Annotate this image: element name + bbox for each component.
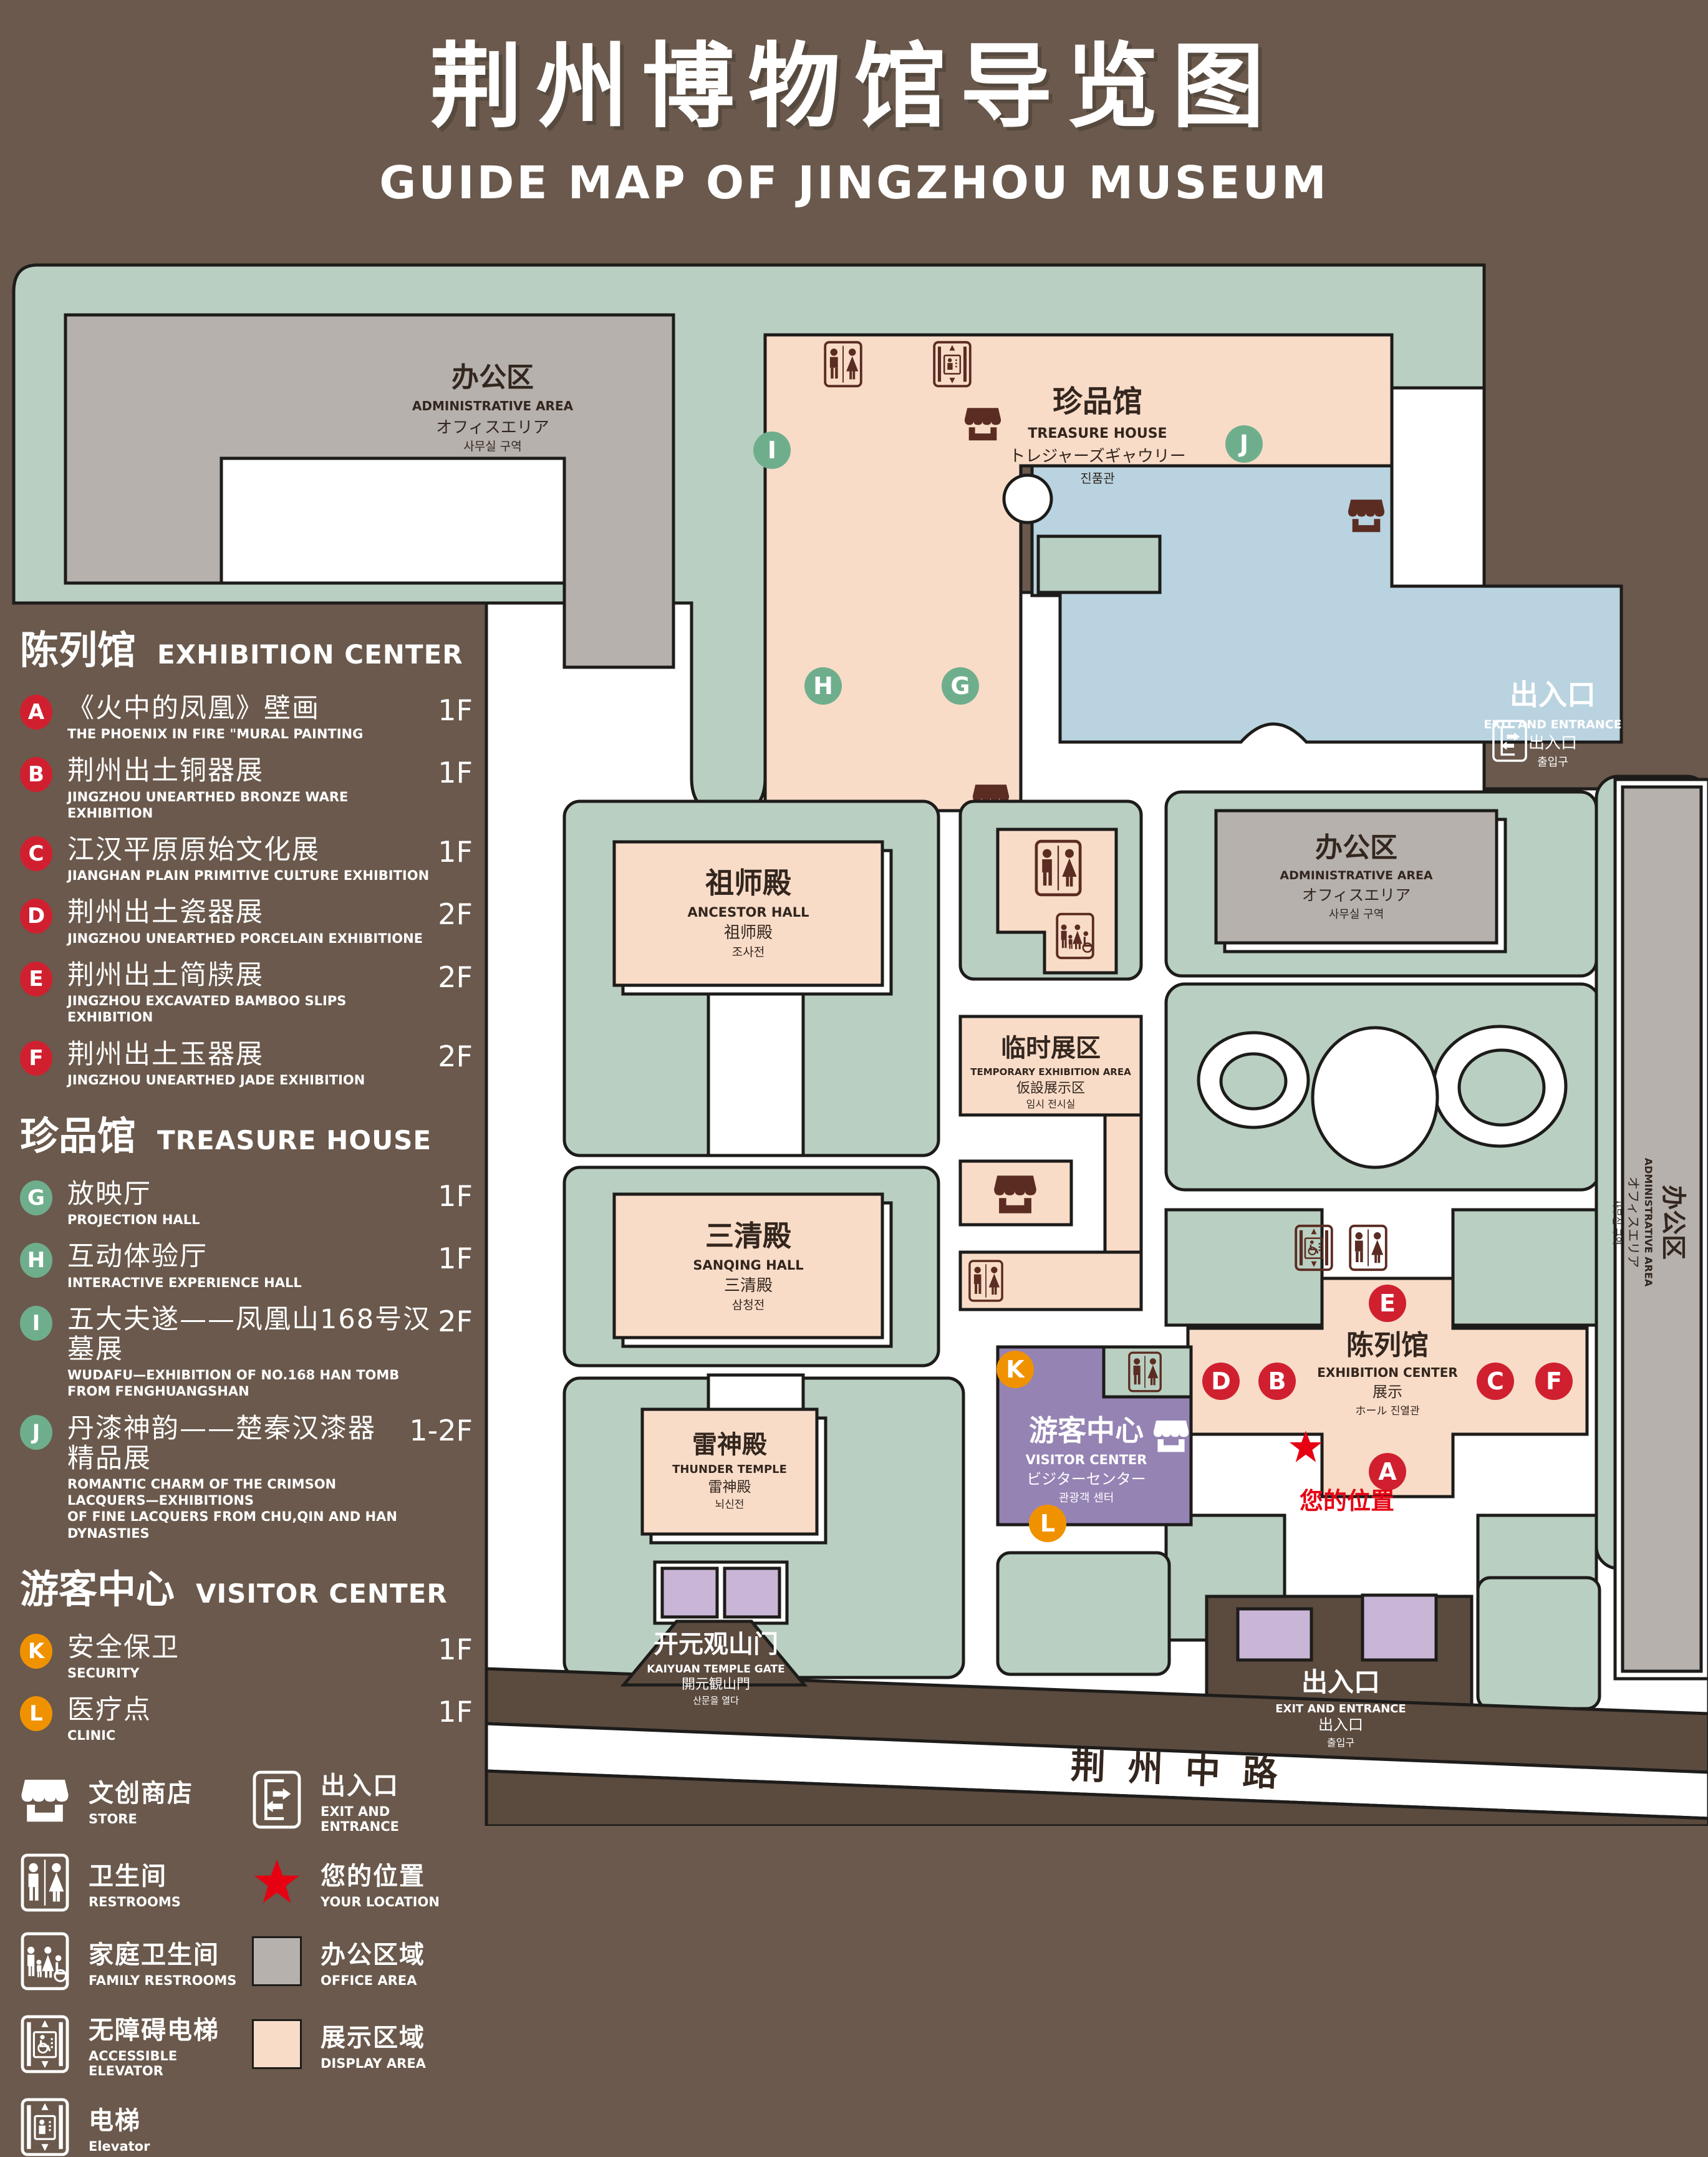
svg-text:H: H	[813, 672, 833, 700]
svg-text:THUNDER TEMPLE: THUNDER TEMPLE	[672, 1463, 787, 1476]
legend-item-j: J 丹漆神韵——楚秦汉漆器精品展 ROMANTIC CHARM OF THE C…	[20, 1414, 473, 1542]
svg-text:SANQING HALL: SANQING HALL	[693, 1258, 803, 1273]
svg-text:展示: 展示	[1373, 1383, 1402, 1401]
svg-text:EXHIBITION CENTER: EXHIBITION CENTER	[1317, 1365, 1458, 1380]
floor-b: 1F	[432, 756, 473, 789]
svg-text:出入口: 出入口	[1318, 1716, 1363, 1734]
legend-item-g: G 放映厅 PROJECTION HALL 1F	[20, 1179, 473, 1228]
floor-f: 2F	[432, 1040, 473, 1073]
svg-text:トレジャーズギャウリー: トレジャーズギャウリー	[1009, 447, 1185, 466]
legend-accessible-elevator: 无障碍电梯 ACCESSIBLE ELEVATOR	[20, 2010, 252, 2078]
floor-d: 2F	[432, 897, 473, 931]
svg-text:ADMINISTRATIVE AREA: ADMINISTRATIVE AREA	[1643, 1158, 1654, 1287]
legend-item-l: L 医疗点 CLINIC 1F	[20, 1695, 473, 1744]
svg-text:G: G	[950, 672, 970, 700]
svg-text:仮設展示区: 仮設展示区	[1016, 1081, 1085, 1096]
badge-i: I	[20, 1306, 52, 1341]
legend-display-area: 展示区域 DISPLAY AREA	[252, 2010, 473, 2078]
path-ancestor	[708, 993, 803, 1156]
svg-text:開元観山門: 開元観山門	[682, 1677, 750, 1692]
lawn-exit-br-right	[1478, 1578, 1599, 1709]
svg-text:VISITOR CENTER: VISITOR CENTER	[1026, 1452, 1147, 1467]
marker-g: G	[942, 667, 979, 705]
garden-island-right	[1459, 1050, 1544, 1125]
legend-your-location: 您的位置 YOUR LOCATION	[252, 1853, 473, 1913]
legend-section-visitor: 游客中心 VISITOR CENTER	[20, 1558, 473, 1614]
svg-text:オフィスエリア: オフィスエリア	[1302, 886, 1411, 904]
lawn-vc-notch	[1104, 1347, 1191, 1397]
section-title-en: EXHIBITION CENTER	[157, 639, 463, 670]
svg-text:J: J	[1238, 430, 1248, 458]
svg-text:I: I	[768, 437, 776, 464]
svg-text:ビジターセンター: ビジターセンター	[1026, 1470, 1146, 1488]
your-location-star	[252, 1853, 304, 1913]
legend-section-treasure: 珍品馆 TREASURE HOUSE	[20, 1104, 473, 1161]
svg-text:출입구: 출입구	[1537, 756, 1568, 769]
svg-text:祖师殿: 祖师殿	[705, 866, 791, 900]
page-title: 荆州博物馆导览图	[0, 11, 1708, 145]
garden-island-left	[1221, 1054, 1286, 1109]
svg-text:出入口: 出入口	[1510, 678, 1596, 712]
legend-item-f: F 荆州出土玉器展 JINGZHOU UNEARTHED JADE EXHIBI…	[20, 1040, 473, 1088]
badge-l: L	[20, 1696, 52, 1731]
garden-pond	[1313, 1028, 1437, 1167]
badge-c: C	[20, 836, 52, 871]
lawn-vc-south	[998, 1553, 1169, 1674]
svg-text:D: D	[1211, 1368, 1231, 1395]
svg-text:办公区: 办公区	[451, 362, 534, 393]
svg-text:游客中心: 游客中心	[1029, 1414, 1144, 1447]
legend-elevator: 电梯 Elevator	[20, 2097, 252, 2157]
legend-panel: 陈列馆 EXHIBITION CENTER A 《火中的凤凰》壁画 THE PH…	[20, 619, 473, 2157]
floor-i: 2F	[432, 1305, 473, 1338]
floor-j: 1-2F	[403, 1414, 473, 1447]
badge-j: J	[20, 1415, 52, 1450]
legend-item-d: D 荆州出土瓷器展 JINGZHOU UNEARTHED PORCELAIN E…	[20, 897, 473, 946]
section-title-en: TREASURE HOUSE	[157, 1125, 432, 1156]
page-subtitle: GUIDE MAP OF JINGZHOU MUSEUM	[0, 157, 1708, 209]
legend-item-e: E 荆州出土简牍展 JINGZHOU EXCAVATED BAMBOO SLIP…	[20, 960, 473, 1026]
svg-text:EXIT AND ENTRANCE: EXIT AND ENTRANCE	[1275, 1702, 1406, 1715]
building-exit-br-right	[1363, 1595, 1436, 1660]
badge-g: G	[20, 1180, 52, 1215]
svg-text:ANCESTOR HALL: ANCESTOR HALL	[688, 905, 809, 920]
legend-exit: 出入口 EXIT AND ENTRANCE	[252, 1765, 473, 1834]
svg-text:B: B	[1268, 1368, 1286, 1395]
marker-d: D	[1202, 1363, 1240, 1400]
legend-store: 文创商店 STORE	[20, 1765, 252, 1834]
svg-text:L: L	[1040, 1510, 1055, 1537]
legend-item-b: B 荆州出土铜器展 JINGZHOU UNEARTHED BRONZE WARE…	[20, 756, 473, 821]
svg-text:조사전: 조사전	[732, 945, 765, 959]
display-area-swatch	[252, 2014, 304, 2074]
accessible-elevator-icon	[20, 2014, 72, 2074]
store-icon	[20, 1770, 72, 1830]
svg-text:临时展区: 临时展区	[1001, 1034, 1101, 1063]
svg-text:출입구: 출입구	[1327, 1737, 1354, 1749]
legend-office-area: 办公区域 OFFICE AREA	[252, 1931, 473, 1991]
your-location-label: 您的位置	[1300, 1487, 1394, 1515]
badge-h: H	[20, 1243, 52, 1278]
legend-restrooms: 卫生间 RESTROOMS	[20, 1853, 252, 1913]
svg-text:사무실 구역: 사무실 구역	[1611, 1199, 1623, 1245]
gate-building-right	[725, 1568, 779, 1617]
marker-f: F	[1535, 1363, 1573, 1400]
svg-text:산문을 열다: 산문을 열다	[693, 1695, 739, 1706]
section-title-cn: 游客中心	[20, 1558, 175, 1614]
legend-item-k: K 安全保卫 SECURITY 1F	[20, 1633, 473, 1681]
svg-text:사무실 구역: 사무실 구역	[1329, 908, 1384, 921]
lawn-on-water	[1038, 536, 1160, 592]
svg-text:사무실 구역: 사무실 구역	[463, 440, 521, 453]
legend-item-i: I 五大夫遂——凤凰山168号汉墓展 WUDAFU—EXHIBITION OF …	[20, 1305, 473, 1400]
accessible-elevator-icon	[1296, 1226, 1332, 1270]
legend-symbols: 文创商店 STORE 出入口 EXIT AND ENTRANCE 卫生间 RES…	[20, 1765, 473, 2157]
restroom-icon	[20, 1853, 72, 1913]
svg-text:진품관: 진품관	[1080, 471, 1114, 486]
svg-text:祖师殿: 祖师殿	[724, 924, 773, 942]
badge-d: D	[20, 899, 52, 934]
svg-text:オフィスエリア: オフィスエリア	[1626, 1177, 1641, 1268]
admin-courtyard	[221, 458, 564, 583]
svg-text:三清殿: 三清殿	[705, 1219, 791, 1253]
marker-a: A	[1369, 1453, 1406, 1490]
marker-h: H	[804, 667, 842, 705]
svg-text:A: A	[1378, 1458, 1397, 1485]
building-exit-br-left	[1238, 1609, 1311, 1660]
svg-text:出入口: 出入口	[1528, 734, 1577, 753]
svg-text:珍品馆: 珍品馆	[1053, 384, 1142, 419]
marker-c: C	[1477, 1363, 1514, 1400]
family-restroom-icon	[20, 1931, 72, 1991]
legend-family-restrooms: 家庭卫生间 FAMILY RESTROOMS	[20, 1931, 252, 1991]
gate-building-left	[662, 1568, 717, 1617]
elevator-icon	[20, 2097, 72, 2157]
marker-b: B	[1258, 1363, 1296, 1400]
svg-text:ADMINISTRATIVE AREA: ADMINISTRATIVE AREA	[412, 398, 574, 413]
marker-i: I	[753, 432, 791, 469]
badge-k: K	[20, 1634, 52, 1669]
marker-j: J	[1225, 425, 1263, 463]
floor-l: 1F	[432, 1695, 473, 1729]
svg-text:开元观山门: 开元观山门	[654, 1630, 778, 1659]
svg-text:KAIYUAN TEMPLE GATE: KAIYUAN TEMPLE GATE	[647, 1663, 785, 1676]
badge-e: E	[20, 962, 52, 996]
svg-text:オフィスエリア: オフィスエリア	[436, 418, 549, 437]
svg-text:EXIT AND ENTRANCE: EXIT AND ENTRANCE	[1484, 718, 1621, 731]
svg-text:관광객 센터: 관광객 센터	[1059, 1492, 1114, 1505]
legend-item-a: A 《火中的凤凰》壁画 THE PHOENIX IN FIRE "MURAL P…	[20, 693, 473, 742]
section-title-cn: 珍品馆	[20, 1104, 136, 1161]
svg-text:ホール 진열관: ホール 진열관	[1355, 1405, 1419, 1417]
floor-k: 1F	[432, 1633, 473, 1666]
svg-text:F: F	[1546, 1368, 1562, 1395]
legend-item-c: C 江汉平原原始文化展 JIANGHAN PLAIN PRIMITIVE CUL…	[20, 835, 473, 884]
exit-entrance-icon	[252, 1770, 304, 1830]
section-title-cn: 陈列馆	[20, 619, 136, 675]
svg-text:出入口: 出入口	[1301, 1667, 1380, 1697]
svg-text:雷神殿: 雷神殿	[692, 1431, 767, 1459]
marker-e: E	[1369, 1285, 1406, 1322]
svg-text:办公区: 办公区	[1315, 832, 1397, 864]
badge-a: A	[20, 695, 52, 730]
svg-text:TEMPORARY EXHIBITION AREA: TEMPORARY EXHIBITION AREA	[970, 1066, 1131, 1078]
legend-item-h: H 互动体验厅 INTERACTIVE EXPERIENCE HALL 1F	[20, 1242, 473, 1290]
badge-b: B	[20, 757, 52, 792]
svg-text:C: C	[1487, 1368, 1504, 1395]
svg-text:三清殿: 三清殿	[724, 1276, 773, 1295]
pond-bite	[1004, 475, 1051, 523]
marker-k: K	[996, 1351, 1034, 1388]
svg-text:뇌신전: 뇌신전	[715, 1498, 745, 1511]
floor-a: 1F	[432, 693, 473, 727]
office-area-swatch	[252, 1931, 304, 1991]
svg-text:办公区: 办公区	[1659, 1185, 1687, 1260]
svg-text:TREASURE HOUSE: TREASURE HOUSE	[1028, 426, 1167, 442]
section-title-en: VISITOR CENTER	[196, 1578, 448, 1609]
floor-h: 1F	[432, 1242, 473, 1275]
elevator-icon	[934, 342, 970, 386]
svg-text:E: E	[1379, 1290, 1396, 1317]
svg-text:雷神殿: 雷神殿	[708, 1479, 751, 1495]
svg-text:K: K	[1006, 1356, 1025, 1383]
path-thunder	[708, 1375, 803, 1412]
svg-text:임시 전시실: 임시 전시실	[1026, 1098, 1076, 1110]
badge-f: F	[20, 1041, 52, 1076]
svg-text:ADMINISTRATIVE AREA: ADMINISTRATIVE AREA	[1280, 869, 1433, 882]
floor-g: 1F	[432, 1179, 473, 1213]
header: 荆州博物馆导览图 GUIDE MAP OF JINGZHOU MUSEUM	[0, 11, 1708, 209]
svg-text:삼청전: 삼청전	[732, 1298, 765, 1312]
marker-l: L	[1029, 1505, 1066, 1542]
legend-section-exhibition: 陈列馆 EXHIBITION CENTER	[20, 619, 473, 675]
floor-c: 1F	[432, 835, 473, 869]
lawn-exh-tr	[1453, 1210, 1596, 1325]
svg-text:陈列馆: 陈列馆	[1346, 1329, 1429, 1361]
floor-e: 2F	[432, 960, 473, 994]
